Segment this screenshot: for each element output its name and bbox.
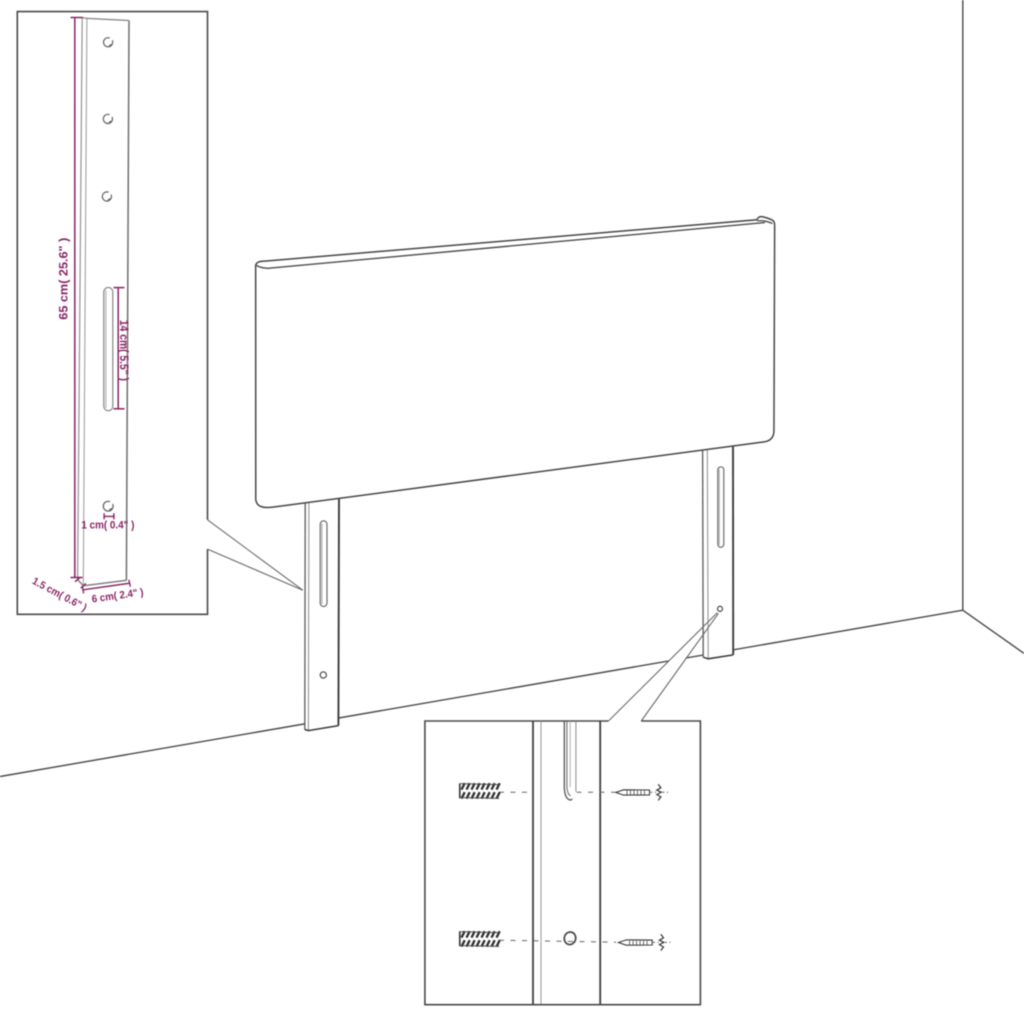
svg-text:1 cm( 0.4" ): 1 cm( 0.4" ) — [81, 520, 134, 532]
svg-text:65 cm( 25.6" ): 65 cm( 25.6" ) — [56, 238, 70, 320]
svg-text:14 cm( 5.5" ): 14 cm( 5.5" ) — [117, 320, 131, 381]
